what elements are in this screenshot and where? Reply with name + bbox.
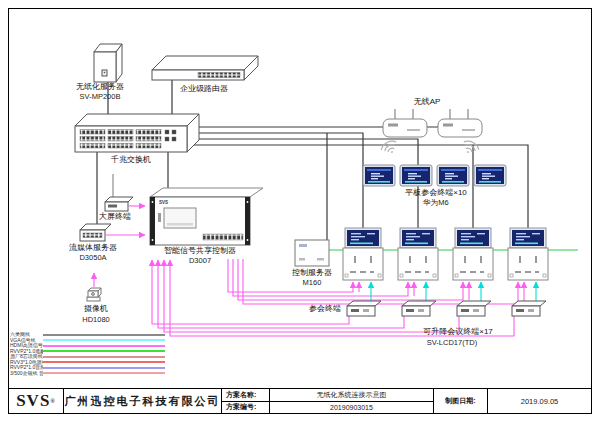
legend-label: 六类网线 — [10, 332, 43, 337]
scheme-no-label: 方案编号: — [222, 402, 269, 414]
svs-logo-text: SVS — [16, 391, 50, 411]
streaming-server-model: D3050A — [79, 253, 106, 262]
controller-faceplate-logo: SVS — [159, 200, 168, 205]
legend-line-swatch — [43, 356, 165, 358]
legend-label: RVV3*1.0电源线 — [10, 360, 43, 365]
tablet-terminals-label: 平板参会终端×10 — [405, 188, 467, 197]
legend-line-swatch — [43, 345, 165, 347]
legend-label: 原厂8芯话筒线 — [10, 354, 43, 359]
scheme-name-label: 方案名称: — [222, 389, 269, 402]
router-label: 企业级路由器 — [180, 84, 228, 93]
streaming-server-label: 流媒体服务器 — [69, 243, 117, 252]
paperless-server-label: 无纸化服务器 — [76, 82, 124, 91]
control-server-model: M160 — [303, 278, 322, 287]
tablet-terminals-model: 华为M6 — [423, 198, 448, 207]
legend-row: 3/500金银线 音箱线 — [10, 371, 165, 377]
paperless-system-diagram: 无纸化服务器 SV-MP200B 企业级路由器 千兆交换机 大屏终端 SVS 智… — [0, 0, 600, 422]
scheme-no-value: 20190903015 — [270, 402, 433, 414]
scheme-labels: 方案名称: 方案编号: — [221, 389, 269, 413]
legend-label: VGA信号线 — [10, 338, 43, 343]
scheme-values: 无纸化系统连接示意图 20190903015 — [269, 389, 433, 413]
date-label: 制图日期: — [433, 389, 487, 413]
company-name: 广州迅控电子科技有限公司 — [63, 389, 221, 413]
legend-label: RVVP2*1.0遮蔽控制线 — [10, 349, 43, 354]
attendee-terminal-label: 参会终端 — [309, 304, 341, 313]
date-value: 2019.09.05 — [487, 389, 591, 413]
signal-controller-label: 智能信号共享控制器 — [164, 246, 236, 255]
registered-mark: ® — [50, 398, 55, 404]
camera-label: 摄像机 — [84, 304, 108, 313]
control-server-label: 控制服务器 — [292, 268, 332, 277]
scheme-name-value: 无纸化系统连接示意图 — [270, 389, 433, 402]
large-screen-terminal-label: 大屏终端 — [99, 212, 131, 221]
lift-terminals-label: 可升降会议终端×17 — [423, 327, 493, 336]
legend-line-swatch — [43, 334, 165, 336]
paperless-server-model: SV-MP200B — [80, 92, 121, 101]
legend-label: HDMI高清信号线 — [10, 343, 43, 348]
legend-line-swatch — [43, 339, 165, 341]
camera-model: HD1080 — [82, 315, 110, 324]
legend-line-swatch — [43, 372, 165, 374]
legend-line-swatch — [43, 367, 165, 369]
legend-line-swatch — [43, 350, 165, 352]
legend-label: RVVP2*1.0音频线 — [10, 365, 43, 370]
legend-label: 3/500金银线 音箱线 — [10, 371, 43, 376]
signal-controller-model: D3007 — [189, 256, 211, 265]
legend-line-swatch — [43, 361, 165, 363]
switch-label: 千兆交换机 — [111, 155, 151, 164]
wireless-ap-label: 无线AP — [414, 97, 441, 106]
svs-logo: SVS® — [9, 389, 63, 413]
title-block: SVS® 广州迅控电子科技有限公司 方案名称: 方案编号: 无纸化系统连接示意图… — [8, 388, 592, 414]
cable-legend: 六类网线 VGA信号线 HDMI高清信号线 RVVP2*1.0遮蔽控制线 原厂8… — [10, 332, 165, 376]
lift-terminals-model: SV-LCD17(TD) — [427, 338, 477, 347]
